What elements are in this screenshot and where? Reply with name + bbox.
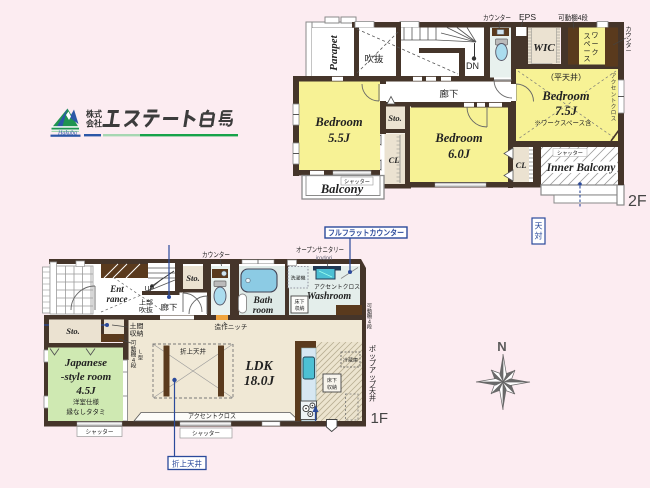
svg-text:Parapet: Parapet: [328, 34, 340, 70]
svg-text:折上天井: 折上天井: [172, 458, 202, 468]
svg-text:LDK: LDK: [245, 358, 274, 373]
svg-text:廊下: 廊下: [440, 88, 459, 99]
svg-text:ト: ト: [611, 98, 617, 104]
svg-text:ー: ー: [625, 49, 631, 55]
svg-text:カウンター: カウンター: [483, 13, 511, 22]
svg-text:Bedroom: Bedroom: [314, 115, 363, 129]
svg-text:1F: 1F: [371, 410, 389, 427]
svg-text:井: 井: [369, 393, 376, 402]
svg-text:会社: 会社: [85, 119, 102, 129]
svg-text:ス: ス: [584, 32, 591, 40]
svg-text:Sto.: Sto.: [186, 273, 199, 283]
svg-text:収納: 収納: [294, 305, 304, 312]
svg-text:Ent: Ent: [109, 284, 124, 294]
svg-text:Inner Balcony: Inner Balcony: [546, 162, 617, 174]
svg-text:6.0J: 6.0J: [448, 147, 471, 161]
svg-text:2F: 2F: [628, 193, 647, 210]
svg-text:シャッター: シャッター: [192, 430, 220, 438]
svg-text:WIC: WIC: [533, 42, 555, 54]
svg-text:Washroom: Washroom: [307, 291, 351, 302]
svg-text:縁なしタタミ: 縁なしタタミ: [67, 407, 106, 416]
svg-text:上部: 上部: [139, 298, 154, 307]
svg-text:洗濯機: 洗濯機: [291, 275, 306, 282]
svg-text:EPS: EPS: [519, 12, 536, 22]
svg-text:可動棚4段: 可動棚4段: [558, 13, 588, 22]
svg-text:room: room: [253, 306, 274, 316]
svg-text:段: 段: [367, 322, 372, 330]
svg-text:シャッター: シャッター: [557, 149, 583, 157]
svg-text:4.5J: 4.5J: [75, 385, 96, 397]
svg-text:ー: ー: [592, 41, 599, 48]
svg-text:（平天井）: （平天井）: [546, 72, 586, 82]
svg-text:ク: ク: [592, 48, 599, 56]
svg-text:洋室仕様: 洋室仕様: [73, 397, 100, 406]
svg-text:N: N: [497, 339, 506, 354]
svg-text:CL: CL: [516, 160, 527, 170]
svg-text:Bedroom: Bedroom: [434, 131, 483, 145]
svg-text:Bath: Bath: [252, 296, 272, 306]
svg-text:床下: 床下: [294, 299, 304, 306]
svg-text:株式: 株式: [86, 109, 102, 119]
svg-text:ク: ク: [611, 103, 617, 110]
svg-text:Sto.: Sto.: [388, 113, 401, 123]
svg-text:土間: 土間: [130, 321, 144, 330]
svg-text:ス: ス: [611, 116, 617, 123]
svg-text:対: 対: [535, 231, 543, 241]
svg-text:7.5J: 7.5J: [555, 104, 578, 118]
svg-text:ス: ス: [584, 55, 591, 63]
svg-text:アクセントクロス: アクセントクロス: [314, 284, 360, 291]
svg-text:アクセントクロス: アクセントクロス: [188, 412, 236, 420]
svg-text:18.0J: 18.0J: [244, 373, 276, 388]
svg-text:※ワークスペース含: ※ワークスペース含: [535, 118, 592, 127]
svg-text:ク: ク: [611, 79, 617, 86]
svg-text:セ: セ: [611, 85, 617, 92]
svg-text:irodori: irodori: [316, 256, 333, 262]
svg-text:段: 段: [131, 362, 137, 370]
svg-text:シャッター: シャッター: [344, 177, 370, 185]
svg-text:カウンター: カウンター: [202, 250, 230, 259]
svg-text:CL: CL: [389, 155, 400, 165]
svg-text:シャッター: シャッター: [86, 428, 114, 436]
svg-text:型: 型: [138, 353, 143, 361]
svg-text:ワ: ワ: [592, 31, 599, 39]
svg-text:天: 天: [535, 222, 543, 231]
svg-text:吹抜: 吹抜: [365, 53, 384, 64]
svg-text:ー: ー: [584, 48, 591, 55]
svg-text:5.5J: 5.5J: [328, 131, 351, 145]
svg-text:オープンサニタリー: オープンサニタリー: [296, 245, 344, 254]
svg-text:Japanese: Japanese: [64, 357, 107, 369]
svg-text:収納: 収納: [130, 329, 144, 338]
svg-text:廊下: 廊下: [161, 302, 178, 312]
svg-text:ペ: ペ: [584, 40, 591, 48]
svg-text:収納: 収納: [327, 384, 337, 391]
svg-text:造作ニッチ: 造作ニッチ: [215, 322, 248, 331]
svg-text:冷蔵庫: 冷蔵庫: [343, 357, 358, 364]
svg-text:ア: ア: [611, 73, 617, 80]
svg-text:ロ: ロ: [611, 111, 617, 117]
svg-text:吹抜: 吹抜: [139, 305, 154, 314]
svg-text:Bedroom: Bedroom: [541, 89, 590, 103]
svg-text:フルフラットカウンター: フルフラットカウンター: [328, 228, 404, 238]
svg-text:Sto.: Sto.: [66, 326, 79, 336]
svg-text:DN: DN: [466, 61, 479, 71]
svg-text:折上天井: 折上天井: [180, 347, 207, 356]
svg-text:-style room: -style room: [61, 371, 112, 383]
svg-text:ン: ン: [611, 92, 617, 98]
svg-text:床下: 床下: [327, 377, 337, 384]
